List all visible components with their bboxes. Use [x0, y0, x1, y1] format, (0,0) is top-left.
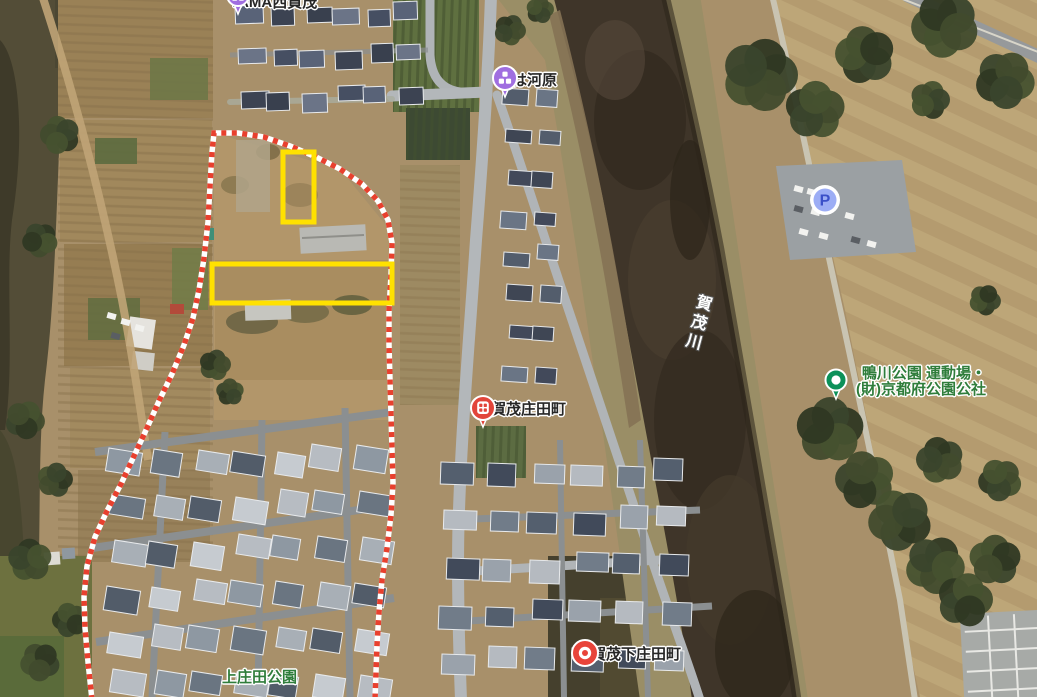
map-label-tama-nishigamo[interactable]: TAMA西賀茂 — [224, 0, 317, 11]
map-label-ohakawara[interactable]: おは河原 — [490, 64, 557, 89]
kamishoda-park-label-text: 上庄田公園 — [222, 670, 297, 686]
annotation-overlay — [0, 0, 1037, 697]
purple-place-pin-icon[interactable] — [490, 64, 520, 100]
green-park-pin-icon[interactable] — [822, 368, 850, 402]
red-bus-stop-pin-icon[interactable] — [468, 394, 498, 430]
purple-place-pin-icon[interactable] — [224, 0, 252, 16]
boundary-line-red-dashed — [84, 133, 393, 697]
map-label-nishigamo-shimoshodacho[interactable]: 西賀茂下庄田町 — [569, 638, 681, 663]
parking-icon[interactable]: P — [809, 184, 841, 216]
map-label-nishigamo-shodacho[interactable]: 西賀茂庄田町 — [468, 394, 566, 418]
red-spot-pin-icon[interactable] — [569, 638, 601, 672]
boundary-line-white — [84, 133, 393, 697]
highlight-rect — [212, 264, 392, 303]
map-label-kamishoda-park[interactable]: 上庄田公園 — [222, 670, 297, 686]
highlight-rectangles — [212, 152, 392, 303]
highlight-rect — [283, 152, 314, 222]
parking-letter: P — [820, 193, 831, 210]
satellite-map[interactable]: TAMA西賀茂 おは河原 賀茂川 西賀茂庄田町 西賀茂下庄 — [0, 0, 1037, 697]
map-label-kamogawa-park[interactable]: 鴨川公園 運動場・ (財)京都府公園公社 — [818, 366, 986, 398]
